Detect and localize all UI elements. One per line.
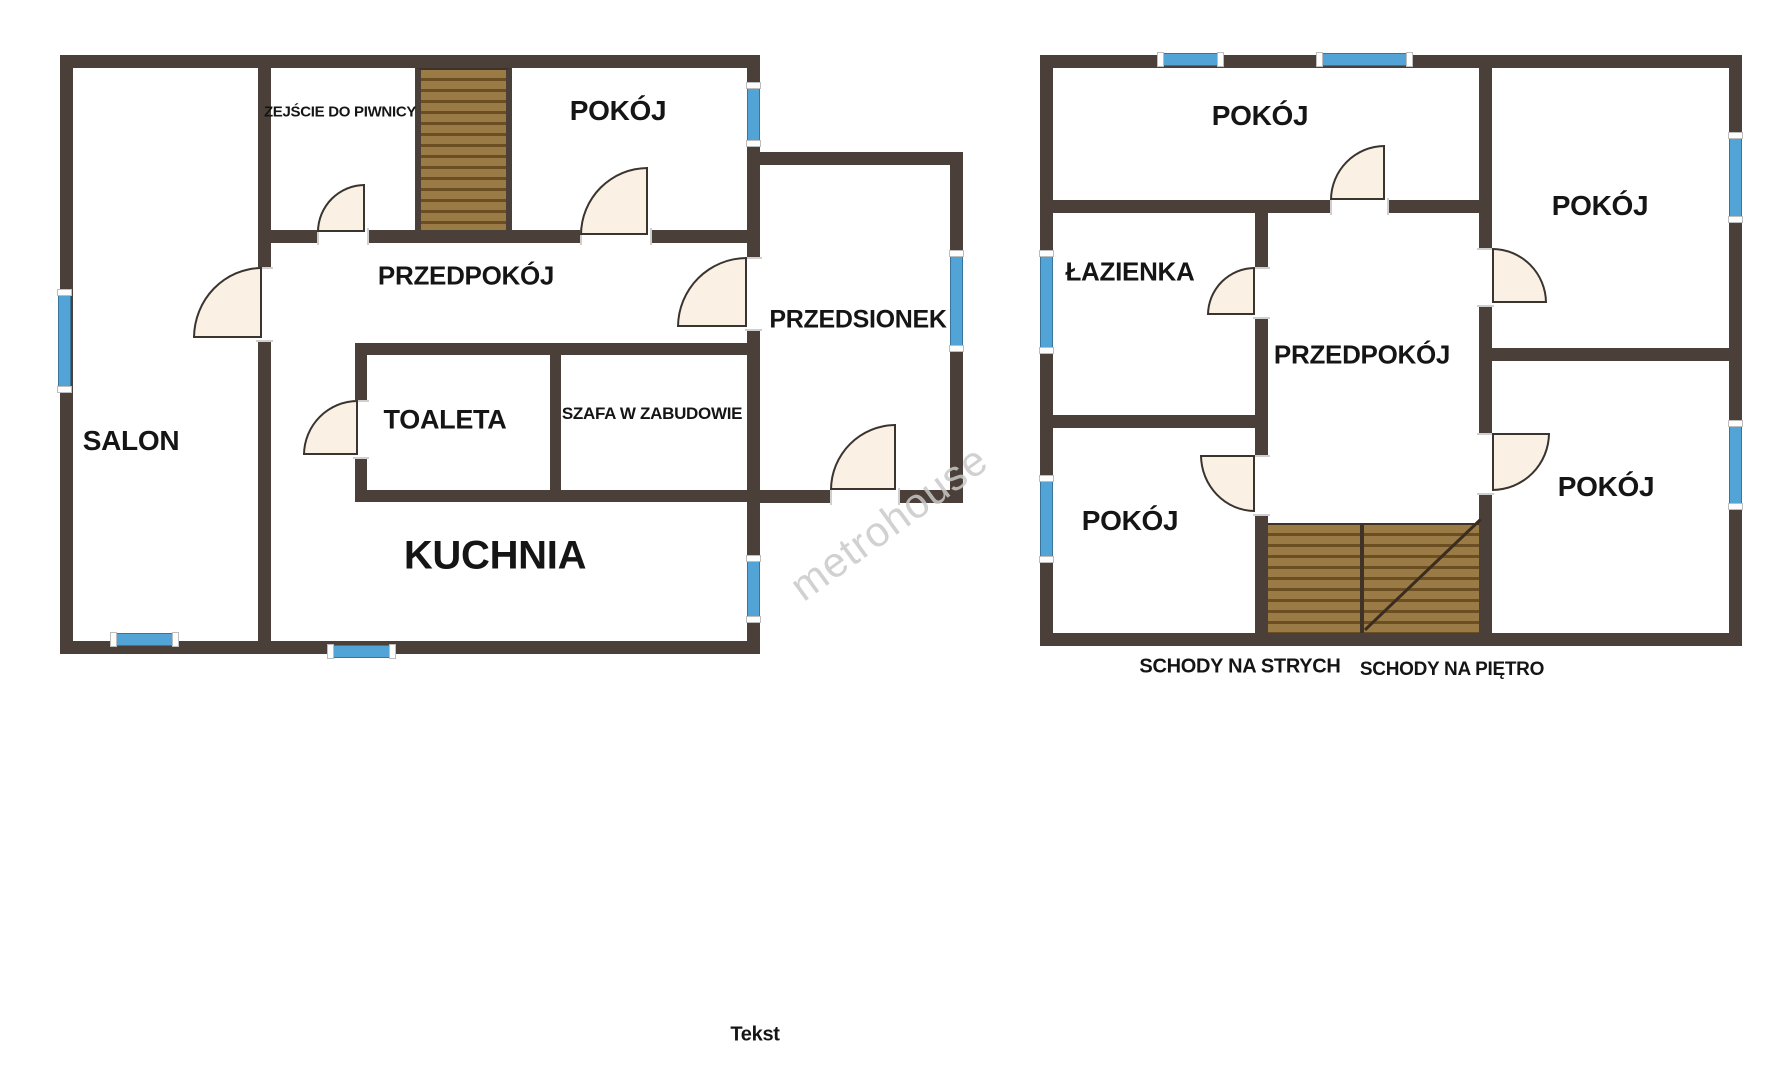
door-arc	[193, 267, 262, 338]
door-opening	[1253, 455, 1270, 516]
window	[1040, 481, 1053, 557]
door-arc	[1330, 145, 1385, 200]
wall	[1040, 633, 1742, 646]
stairs-diagonal-line	[1364, 518, 1482, 631]
footer-label: Tekst	[730, 1024, 779, 1047]
room-label-wardrobe: SZAFA W ZABUDOWIE	[562, 404, 742, 424]
door-arc	[580, 167, 648, 235]
door-arc	[317, 184, 365, 232]
stairs-to-basement	[415, 68, 512, 230]
stairs-to-floor	[1364, 523, 1479, 633]
stairs-label-attic: SCHODY NA STRYCH	[1139, 656, 1340, 679]
room-label-vestibule: PRZEDSIONEK	[769, 306, 946, 335]
door-opening	[1253, 267, 1270, 319]
window	[1163, 53, 1218, 66]
window	[1040, 256, 1053, 348]
door-arc	[1492, 433, 1550, 491]
wall	[1479, 348, 1729, 361]
door-arc	[303, 400, 358, 455]
door-opening	[1330, 198, 1389, 215]
window	[950, 256, 963, 346]
door-arc	[1200, 455, 1255, 512]
window	[333, 645, 390, 658]
room-label-room-right-bottom: POKÓJ	[1558, 471, 1655, 503]
room-label-basement-exit: ZEJŚCIE DO PIWNICY	[264, 104, 416, 121]
wall	[60, 55, 760, 68]
door-opening	[745, 257, 762, 331]
wall	[747, 152, 963, 165]
wall	[258, 68, 271, 641]
window	[747, 561, 760, 617]
room-label-room-left: POKÓJ	[1082, 505, 1179, 537]
wall	[355, 343, 747, 355]
stairs-to-attic	[1268, 523, 1360, 633]
room-label-salon: SALON	[83, 425, 180, 457]
stairs-label-floor: SCHODY NA PIĘTRO	[1360, 659, 1544, 681]
door-arc	[1207, 267, 1255, 315]
wall	[355, 490, 747, 502]
window	[1322, 53, 1407, 66]
door-arc	[677, 257, 747, 327]
wall	[550, 355, 561, 490]
wall	[1053, 415, 1255, 428]
room-label-room-top: POKÓJ	[1212, 100, 1309, 132]
room-label-bathroom: ŁAZIENKA	[1065, 257, 1194, 288]
room-label-hallway: PRZEDPOKÓJ	[378, 261, 554, 292]
room-label-hallway-upper: PRZEDPOKÓJ	[1274, 340, 1450, 371]
window	[1729, 138, 1742, 217]
door-arc	[830, 424, 896, 490]
window	[1729, 426, 1742, 504]
window	[58, 295, 71, 387]
floorplan-canvas: SALON ZEJŚCIE DO PIWNICY POKÓJ PRZEDPOKÓ…	[0, 0, 1786, 1080]
window	[116, 633, 173, 646]
door-arc	[1492, 248, 1547, 303]
room-label-toilet: TOALETA	[384, 405, 507, 436]
wall	[1255, 200, 1268, 633]
room-label-kitchen: KUCHNIA	[404, 534, 586, 579]
wall	[1053, 200, 1492, 213]
room-label-room: POKÓJ	[570, 95, 667, 127]
room-label-room-right-top: POKÓJ	[1552, 190, 1649, 222]
window	[747, 88, 760, 141]
